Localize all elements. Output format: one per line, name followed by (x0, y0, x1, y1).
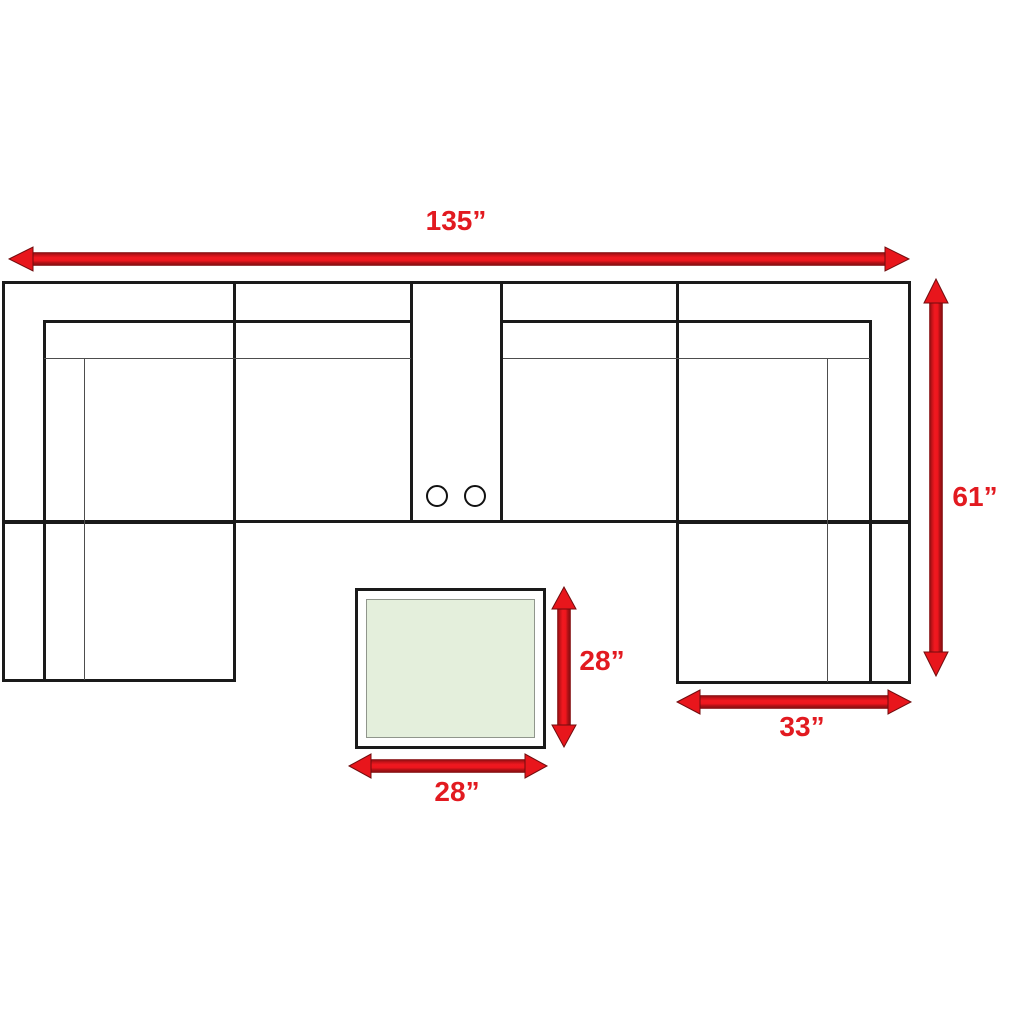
overall-depth-label: 61” (945, 483, 1005, 511)
ottoman-table-top (366, 599, 535, 738)
console-left-edge (410, 281, 413, 523)
sofa-left-chaise-outline (2, 521, 236, 682)
left-armrest-line (43, 320, 46, 680)
sofa-right-chaise-outline (676, 521, 911, 684)
backrest-line-right (500, 320, 872, 323)
overall-width-arrow-icon (8, 244, 910, 274)
cushion-line-back-right (503, 358, 870, 359)
cushion-line-right-chaise (827, 358, 828, 682)
cushion-line-left-chaise (84, 358, 85, 680)
right-armrest-line (869, 320, 872, 682)
seat-divider-left (233, 281, 236, 523)
cup-holder-right-icon (464, 485, 486, 507)
backrest-line-left (43, 320, 413, 323)
chaise-width-label: 33” (758, 713, 846, 741)
seat-divider-right (676, 281, 679, 523)
overall-depth-arrow-icon (921, 278, 951, 677)
console-right-edge (500, 281, 503, 523)
table-depth-label: 28” (574, 647, 630, 675)
sofa-back-row-outline (2, 281, 911, 523)
table-width-label: 28” (413, 778, 501, 806)
overall-width-label: 135” (406, 207, 506, 235)
sofa-dimension-diagram: 135” 61” 33” 28” 28” (0, 0, 1024, 1024)
cup-holder-left-icon (426, 485, 448, 507)
cushion-line-back-left (44, 358, 411, 359)
